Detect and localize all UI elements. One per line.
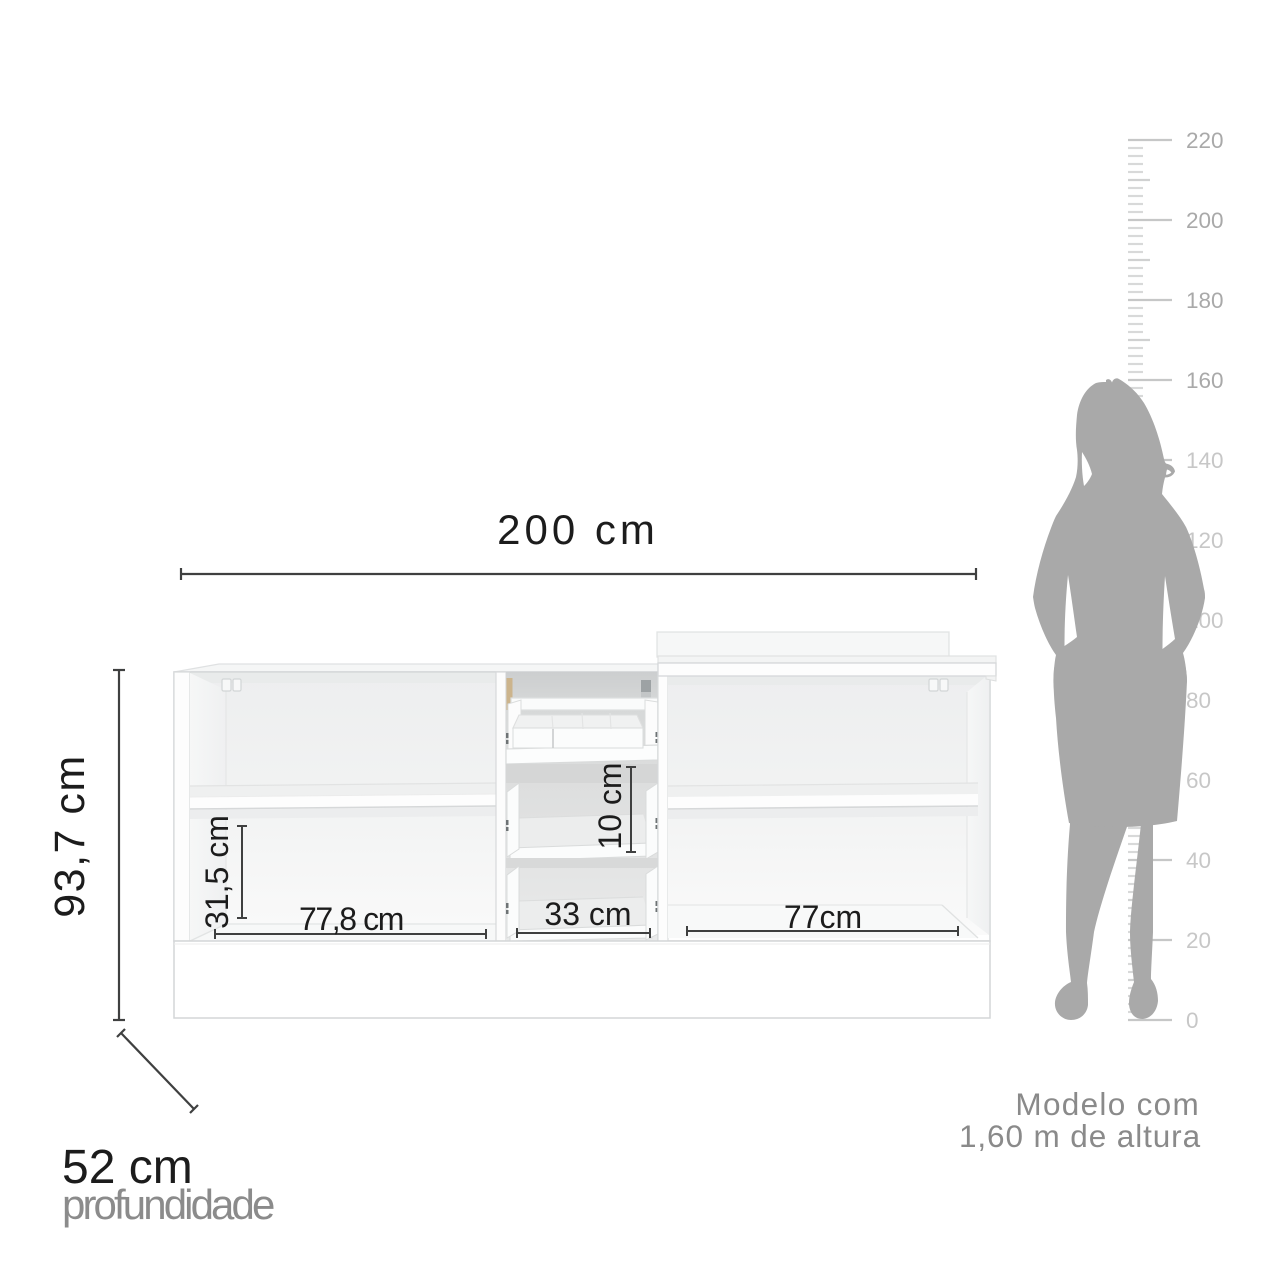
svg-text:0: 0: [1186, 1008, 1199, 1033]
svg-text:profundidade: profundidade: [62, 1181, 274, 1228]
svg-text:160: 160: [1186, 368, 1224, 393]
svg-text:60: 60: [1186, 768, 1211, 793]
svg-text:140: 140: [1186, 448, 1224, 473]
svg-text:20: 20: [1186, 928, 1211, 953]
svg-text:77cm: 77cm: [784, 899, 862, 935]
svg-text:Modelo com: Modelo com: [1015, 1086, 1200, 1122]
svg-text:77,8 cm: 77,8 cm: [299, 901, 403, 937]
svg-text:93,7 cm: 93,7 cm: [46, 754, 94, 917]
svg-text:80: 80: [1186, 688, 1211, 713]
svg-text:33 cm: 33 cm: [544, 896, 631, 932]
svg-text:180: 180: [1186, 288, 1224, 313]
svg-text:31,5 cm: 31,5 cm: [199, 815, 235, 929]
svg-text:200: 200: [1186, 208, 1224, 233]
svg-text:40: 40: [1186, 848, 1211, 873]
svg-text:10 cm: 10 cm: [592, 762, 628, 849]
svg-text:220: 220: [1186, 128, 1224, 153]
svg-text:1,60 m de altura: 1,60 m de altura: [959, 1118, 1201, 1154]
svg-text:200 cm: 200 cm: [497, 506, 659, 553]
